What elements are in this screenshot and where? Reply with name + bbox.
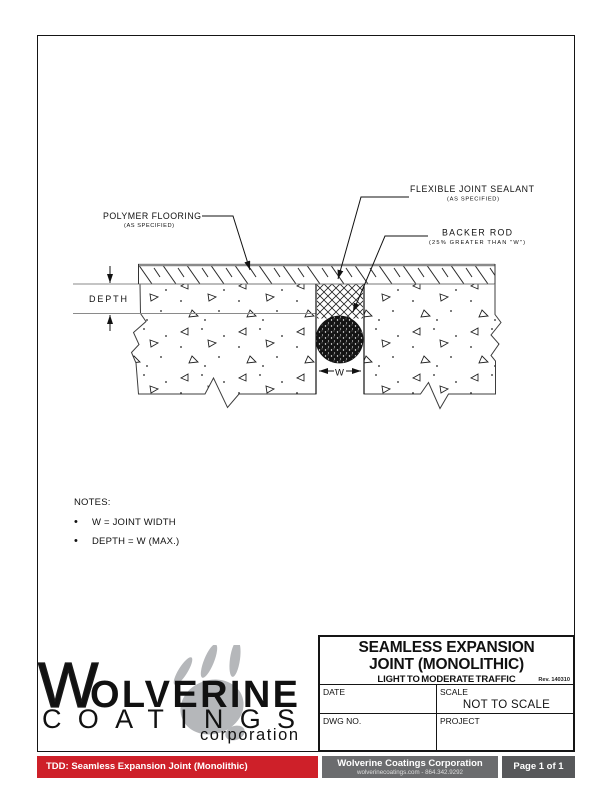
width-dimension-label: W [335,368,344,379]
backer-rod-circle [316,316,363,363]
note-item: W = JOINT WIDTH [74,517,179,528]
polymer-flooring-label: POLYMER FLOORING [103,211,201,221]
date-label: DATE [323,687,345,697]
joint-sealant-sublabel: (AS SPECIFIED) [447,197,499,203]
title-block-row-2: DWG NO. PROJECT [320,714,573,750]
document-title-bar: TDD: Seamless Expansion Joint (Monolithi… [37,756,318,778]
company-contact: wolverinecoatings.com - 864.342.9292 [322,769,498,777]
drawing-subtitle: LIGHT TO MODERATE TRAFFIC [320,674,573,685]
date-cell: DATE [320,685,437,713]
backer-rod-label: BACKER ROD [442,228,512,238]
drawing-title-line2: JOINT (MONOLITHIC) [320,657,573,674]
drawing-sheet-page: { "drawing": { "labels": { "polymer_floo… [0,0,612,792]
dwg-no-cell: DWG NO. [320,714,437,750]
joint-sealant-label: FLEXIBLE JOINT SEALANT [410,184,535,194]
wolverine-coatings-logo: W OLVERINE COATINGS corporation [37,645,317,755]
backer-rod-sublabel: (25% GREATER THAN "W") [429,240,525,246]
concrete-slab-right [364,284,501,409]
drawing-title-line1: SEAMLESS EXPANSION [320,640,573,657]
scale-cell: SCALE NOT TO SCALE [437,685,573,713]
company-name: Wolverine Coatings Corporation [322,759,498,769]
title-block-header: SEAMLESS EXPANSION JOINT (MONOLITHIC) LI… [320,637,573,685]
notes-section: NOTES: W = JOINT WIDTH DEPTH = W (MAX.) [74,497,179,554]
page-indicator: Page 1 of 1 [502,756,575,778]
joint-sealant-hatch [317,285,363,319]
concrete-slab-left [132,284,317,408]
company-info-bar: Wolverine Coatings Corporation wolverine… [322,756,498,778]
polymer-flooring-layer [138,264,495,284]
depth-dimension-label: DEPTH [89,294,127,304]
project-label: PROJECT [440,716,480,726]
leader-polymer-flooring [202,216,250,270]
polymer-flooring-sublabel: (AS SPECIFIED) [124,223,174,229]
scale-label: SCALE [440,687,468,697]
revision-number: Rev. 140310 [538,677,570,683]
note-item: DEPTH = W (MAX.) [74,536,179,547]
dwg-no-label: DWG NO. [323,716,361,726]
scale-value: NOT TO SCALE [440,699,573,711]
logo-corporation-text: corporation [200,726,298,744]
title-block: SEAMLESS EXPANSION JOINT (MONOLITHIC) LI… [318,635,575,752]
title-block-row-1: DATE SCALE NOT TO SCALE [320,685,573,714]
notes-heading: NOTES: [74,497,179,508]
project-cell: PROJECT [437,714,573,750]
